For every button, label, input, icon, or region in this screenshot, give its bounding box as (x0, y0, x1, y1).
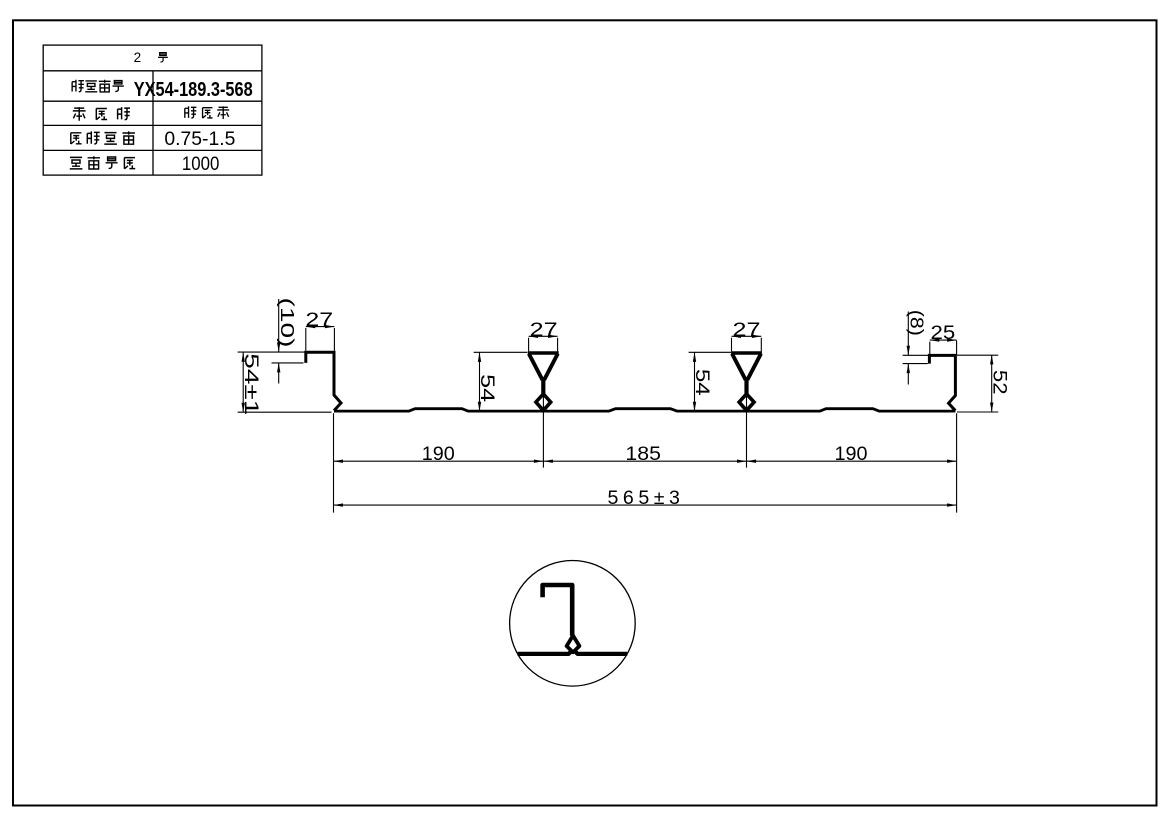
svg-text:27: 27 (305, 309, 333, 331)
svg-text:52: 52 (988, 370, 1010, 395)
svg-text:1000: 1000 (182, 154, 220, 175)
svg-text:190: 190 (422, 443, 455, 465)
svg-text:27: 27 (733, 319, 761, 341)
svg-text:54±1: 54±1 (240, 353, 262, 415)
svg-text:54: 54 (476, 374, 498, 402)
svg-text:25: 25 (931, 322, 956, 344)
svg-text:185: 185 (625, 443, 661, 465)
svg-text:2: 2 (134, 50, 142, 65)
svg-text:(10): (10) (277, 298, 297, 348)
svg-text:565±3: 565±3 (607, 487, 680, 509)
svg-text:27: 27 (530, 319, 558, 341)
svg-text:YX54-189.3-568: YX54-189.3-568 (134, 78, 253, 101)
svg-text:190: 190 (835, 443, 868, 465)
svg-text:0.75-1.5: 0.75-1.5 (164, 128, 235, 150)
svg-text:(8): (8) (906, 310, 926, 336)
svg-text:54: 54 (691, 369, 713, 396)
